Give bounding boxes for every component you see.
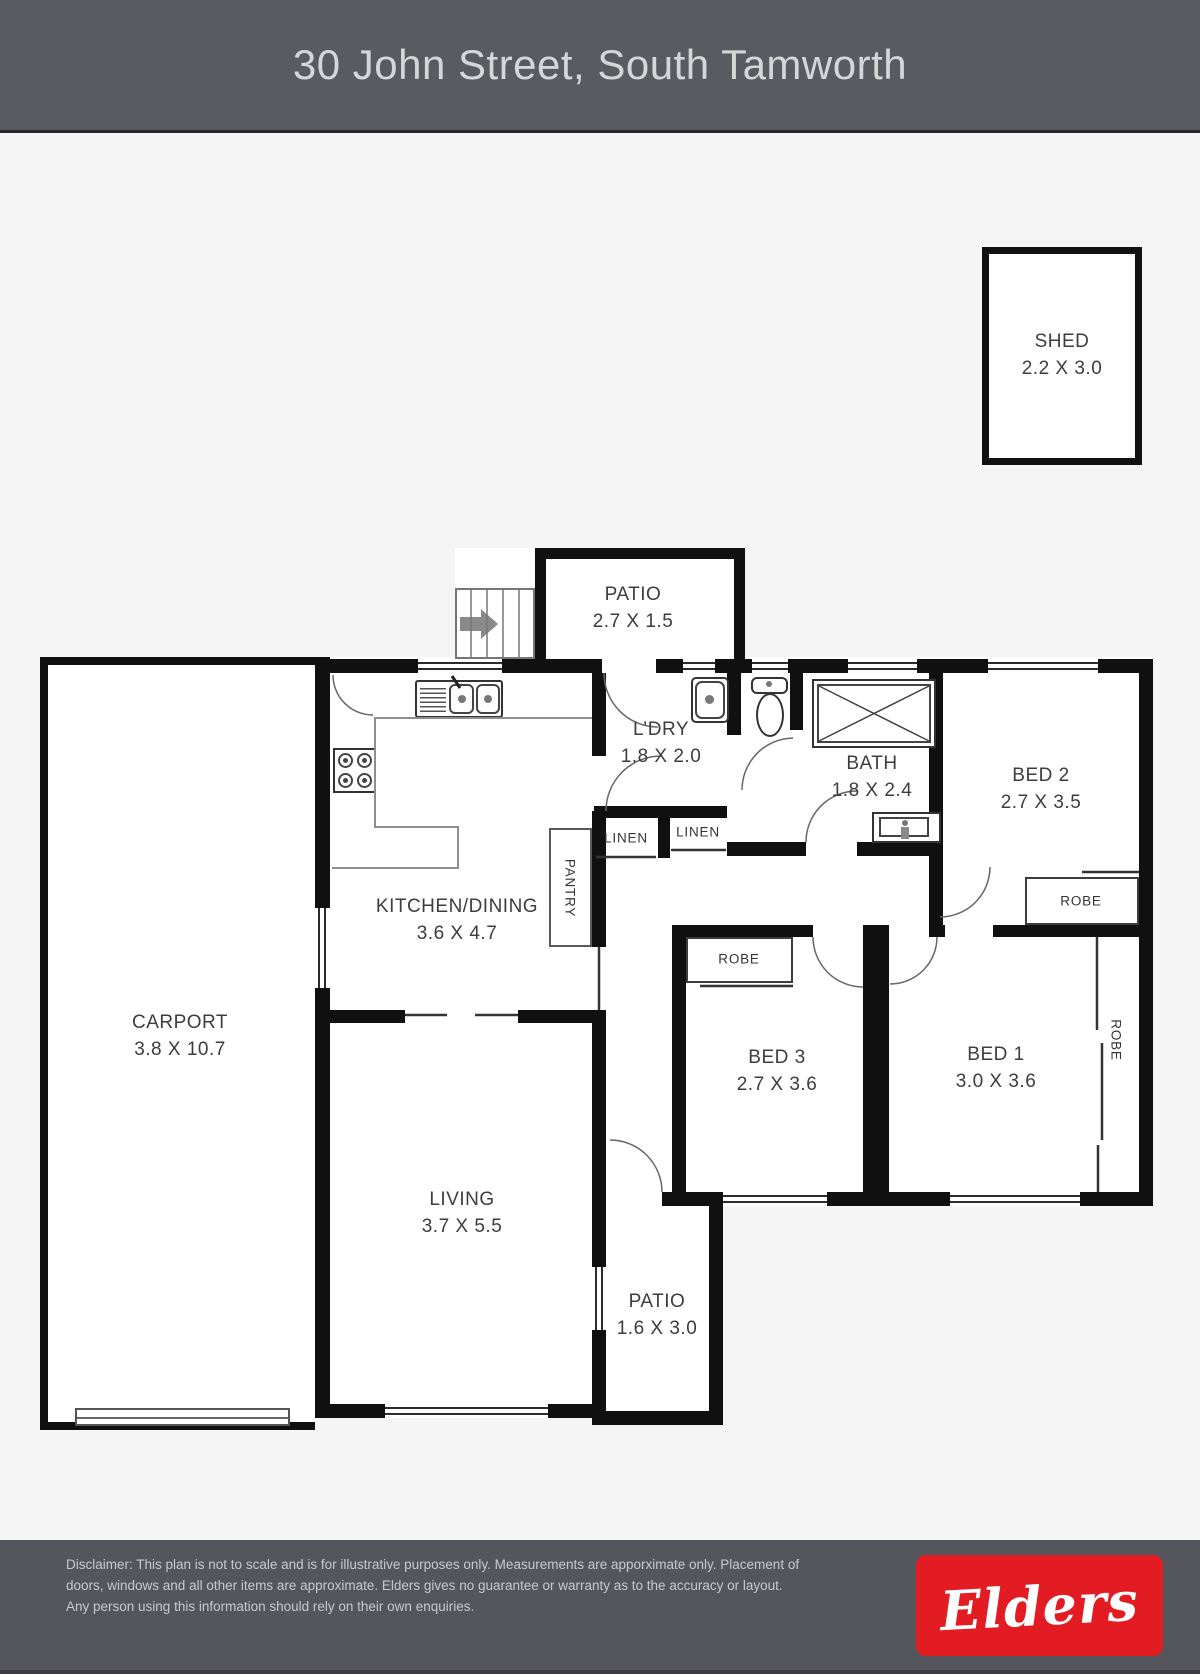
floor-plan-page: 30 John Street, South Tamworth — [0, 0, 1200, 1674]
room-dims: 2.2 X 3.0 — [1022, 355, 1103, 382]
room-label-bed1: BED 1 3.0 X 3.6 — [956, 1041, 1037, 1095]
room-name: BED 2 — [1001, 762, 1082, 789]
room-dims: 1.8 X 2.4 — [832, 777, 913, 804]
room-name: L’DRY — [621, 716, 702, 743]
room-name: PATIO — [593, 581, 674, 608]
room-dims: 1.8 X 2.0 — [621, 743, 702, 770]
room-dims: 3.8 X 10.7 — [132, 1036, 228, 1063]
linen-label: LINEN — [676, 825, 720, 840]
robe-label-bed2: ROBE — [1060, 894, 1101, 909]
linen-label: LINEN — [604, 831, 648, 846]
room-dims: 2.7 X 3.6 — [737, 1071, 818, 1098]
room-label-bath: BATH 1.8 X 2.4 — [832, 750, 913, 804]
room-name: BED 1 — [956, 1041, 1037, 1068]
pantry-label: PANTRY — [563, 859, 578, 917]
room-label-patio-top: PATIO 2.7 X 1.5 — [593, 581, 674, 635]
room-name: BATH — [832, 750, 913, 777]
room-label-carport: CARPORT 3.8 X 10.7 — [132, 1009, 228, 1063]
robe-label-bed3: ROBE — [718, 952, 759, 967]
plan-linework — [0, 0, 1200, 1674]
room-label-ldry: L’DRY 1.8 X 2.0 — [621, 716, 702, 770]
room-label-kitchen: KITCHEN/DINING 3.6 X 4.7 — [376, 893, 538, 947]
room-name: BED 3 — [737, 1044, 818, 1071]
room-label-shed: SHED 2.2 X 3.0 — [1022, 328, 1103, 382]
room-name: KITCHEN/DINING — [376, 893, 538, 920]
room-label-bed2: BED 2 2.7 X 3.5 — [1001, 762, 1082, 816]
disclaimer-line: Any person using this information should… — [66, 1599, 474, 1614]
room-name: PATIO — [617, 1288, 698, 1315]
footer: Disclaimer: This plan is not to scale an… — [0, 1540, 1200, 1674]
room-dims: 3.6 X 4.7 — [376, 920, 538, 947]
room-name: SHED — [1022, 328, 1103, 355]
room-label-patio-bottom: PATIO 1.6 X 3.0 — [617, 1288, 698, 1342]
room-label-bed3: BED 3 2.7 X 3.6 — [737, 1044, 818, 1098]
room-label-living: LIVING 3.7 X 5.5 — [422, 1186, 503, 1240]
room-name: CARPORT — [132, 1009, 228, 1036]
room-dims: 2.7 X 3.5 — [1001, 789, 1082, 816]
room-dims: 1.6 X 3.0 — [617, 1315, 698, 1342]
disclaimer: Disclaimer: This plan is not to scale an… — [66, 1554, 799, 1617]
room-name: LIVING — [422, 1186, 503, 1213]
room-dims: 3.0 X 3.6 — [956, 1068, 1037, 1095]
robe-label-bed1: ROBE — [1109, 1019, 1124, 1060]
room-dims: 2.7 X 1.5 — [593, 608, 674, 635]
elders-logo-text: Elders — [939, 1568, 1141, 1642]
disclaimer-line: Disclaimer: This plan is not to scale an… — [66, 1557, 799, 1572]
elders-logo: Elders — [916, 1555, 1163, 1656]
disclaimer-line: doors, windows and all other items are a… — [66, 1578, 783, 1593]
room-dims: 3.7 X 5.5 — [422, 1213, 503, 1240]
